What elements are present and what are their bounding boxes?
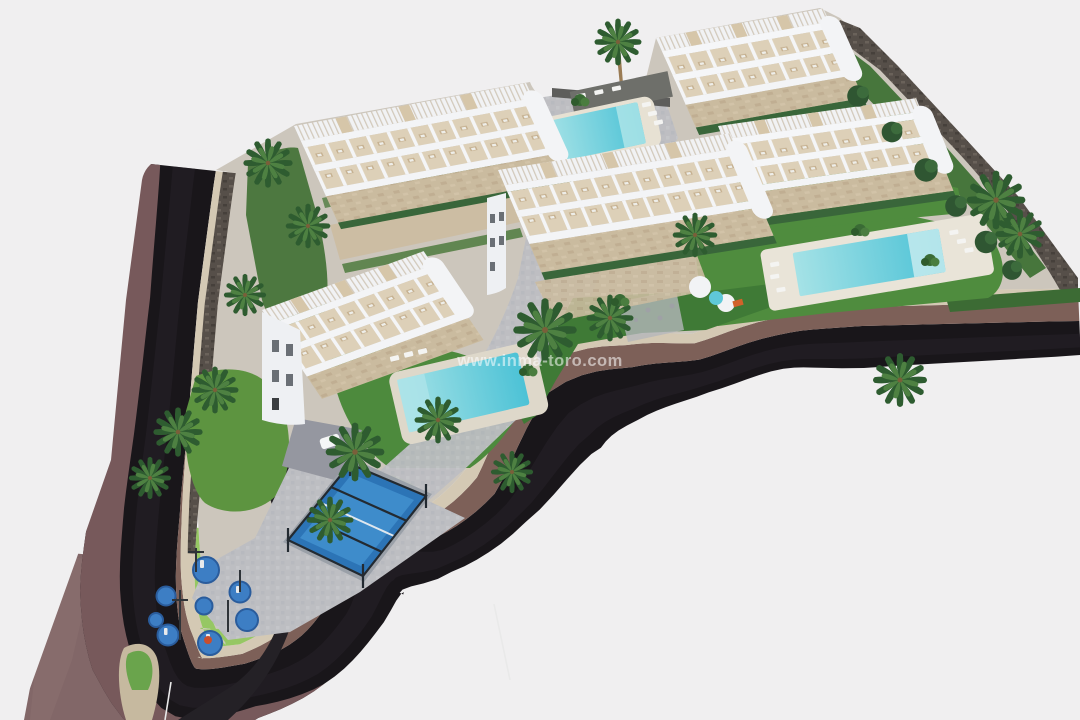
svg-text:www.inma-toro.com: www.inma-toro.com xyxy=(456,352,623,370)
